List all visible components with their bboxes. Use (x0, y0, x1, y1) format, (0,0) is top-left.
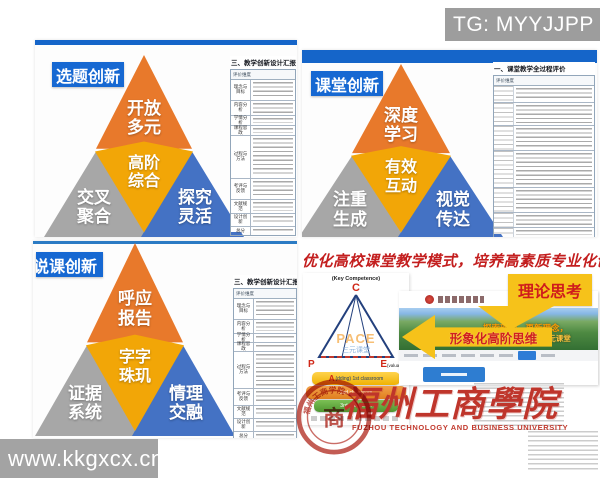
university-name-en: FUZHOU TECHNOLOGY AND BUSINESS UNIVERSIT… (352, 423, 568, 432)
slide-classroom-innovation: 课堂创新 深度学习 有效互动 注重生成 视觉传达 一、课堂教学全过程评价 评价维… (302, 50, 597, 237)
small-text-blur (528, 431, 598, 471)
pyramid-label-middle: 有效互动 (385, 159, 417, 196)
table-row (494, 86, 594, 103)
theory-arrow: 理论思考 (508, 274, 592, 306)
pyramid-label-middle: 高阶综合 (128, 155, 160, 192)
design-evaluation-table: 三、教学创新设计汇报 评价维度 理念与目标 内容分析 学情分析 课程思政 过程与… (230, 56, 296, 232)
table-row (494, 228, 594, 237)
website-title-blur (438, 296, 484, 303)
table-row: 内容分析 (231, 101, 295, 116)
pyramid-lecture: 呼应报告 字字珠玑 证据系统 情理交融 (35, 243, 235, 436)
table-header: 评价维度 (234, 289, 296, 299)
table-row: 总分 (231, 227, 295, 235)
table-row: 课程思政 (231, 126, 295, 136)
university-logo-icon (425, 295, 434, 304)
university-name-cn: 福州工商學院 (342, 376, 558, 427)
pyramid-label-left: 注重生成 (333, 190, 367, 229)
classroom-evaluation-table: 一、课堂教学全过程评价 评价维度 (493, 62, 595, 234)
table-row: 理念与目标 (231, 80, 295, 101)
pyramid-label-left: 交叉聚合 (77, 188, 111, 227)
table-header: 评价维度 (494, 76, 594, 86)
table-title: 三、教学创新设计汇报 (231, 57, 296, 67)
university-seal: 福州工商学院 商 (295, 377, 373, 457)
pace-p-label: P (308, 359, 315, 370)
pyramid-classroom: 深度学习 有效互动 注重生成 视觉传达 (302, 64, 503, 237)
slides-collage: 选题创新 开放多元 高阶综合 交叉聚合 探究灵活 三、教学创新设计汇报 评价维度… (0, 0, 600, 480)
pyramid-topic: 开放多元 高阶综合 交叉聚合 探究灵活 (44, 55, 244, 237)
slide-lecture-innovation: 说课创新 呼应报告 字字珠玑 证据系统 情理交融 三、教学创新设计汇报 评价维度… (33, 241, 297, 438)
table-row: 文献规范 (234, 406, 296, 419)
table-row (494, 103, 594, 126)
pace-word: PACE (303, 331, 409, 346)
summary-title: 优化高校课堂教学模式，培养高素质专业化创新 (302, 250, 598, 271)
pyramid-label-top: 深度学习 (384, 106, 418, 145)
table-row: 设计创新 (231, 214, 295, 227)
table-row: 考评与反馈 (234, 389, 296, 406)
svg-text:商: 商 (323, 406, 345, 431)
table-title: 三、教学创新设计汇报 (234, 276, 297, 286)
table-row: 考评与反馈 (231, 179, 295, 200)
pyramid-label-top: 呼应报告 (118, 289, 152, 328)
table-row: 总分 (234, 432, 296, 438)
table-row: 过程与方法 (231, 136, 295, 179)
pyramid-label-right: 探究灵活 (178, 188, 212, 227)
table-row (494, 213, 594, 228)
watermark-telegram: TG: MYYJJPP (445, 8, 600, 41)
table-row (494, 126, 594, 151)
table-row (494, 151, 594, 188)
table-header: 评价维度 (231, 70, 295, 80)
table-row: 文献规范 (231, 200, 295, 214)
pace-word-sub: 三元课堂 (303, 345, 409, 355)
table-row (494, 188, 594, 213)
design-evaluation-table: 三、教学创新设计汇报 评价维度 理念与目标 内容分析 学情分析 课程思政 过程与… (233, 275, 297, 436)
table-title: 一、课堂教学全过程评价 (494, 63, 595, 73)
pyramid-label-top: 开放多元 (127, 99, 161, 138)
slide-top-bar (35, 40, 297, 45)
watermark-site: www.kkgxcx.cn (0, 439, 158, 478)
pyramid-label-right: 情理交融 (169, 384, 203, 423)
table-row: 理念与目标 (234, 299, 296, 320)
slide-topic-innovation: 选题创新 开放多元 高阶综合 交叉聚合 探究灵活 三、教学创新设计汇报 评价维度… (35, 40, 297, 237)
table-row: 过程与方法 (234, 352, 296, 389)
pyramid-label-middle: 字字珠玑 (119, 349, 151, 386)
pyramid-label-right: 视觉传达 (436, 190, 470, 229)
table-row: 设计创新 (234, 419, 296, 432)
nav-active-item (518, 351, 536, 360)
table-row: 课程思政 (234, 343, 296, 352)
pyramid-label-left: 证据系统 (68, 384, 102, 423)
